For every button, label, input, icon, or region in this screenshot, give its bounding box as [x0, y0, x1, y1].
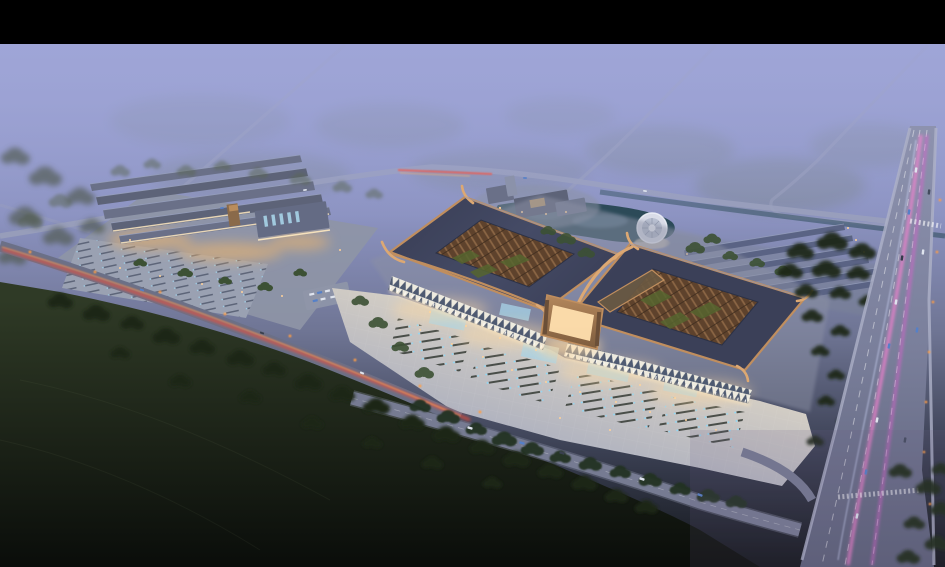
top-letterbox-bar [0, 0, 945, 44]
dusk-haze [690, 430, 945, 567]
scene-root [0, 0, 945, 567]
